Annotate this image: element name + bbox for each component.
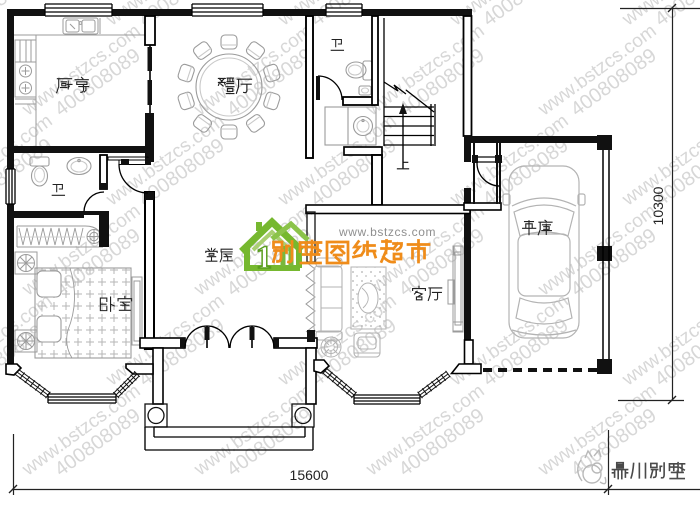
svg-text:15600: 15600 — [290, 467, 329, 483]
svg-text:1: 1 — [256, 240, 273, 276]
svg-text:www.bstzcs.com: www.bstzcs.com — [338, 225, 436, 239]
svg-text:10300: 10300 — [650, 186, 666, 225]
